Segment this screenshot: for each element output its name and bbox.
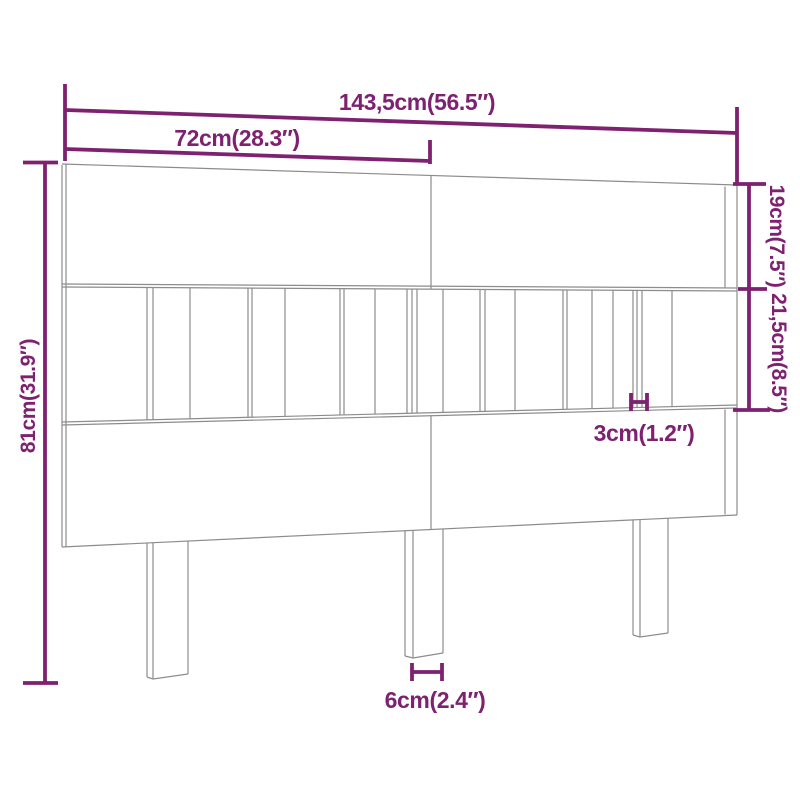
dim-leg-width-label: 6cm(2.4″) <box>385 687 486 713</box>
dim-total-width: 143,5cm(56.5″) <box>65 84 737 184</box>
dim-total-height: 81cm(31.9″) <box>17 163 58 684</box>
dim-right-brackets: 19cm(7.5″) 21,5cm(8.5″) <box>733 184 790 413</box>
diagram-page: 143,5cm(56.5″) 72cm(28.3″) 19cm(7.5″) 21… <box>0 0 800 800</box>
dimension-annotations: 143,5cm(56.5″) 72cm(28.3″) 19cm(7.5″) 21… <box>17 84 790 713</box>
center-leg-bottom-edge <box>405 653 443 658</box>
dim-leg-width: 6cm(2.4″) <box>385 663 486 713</box>
dim-middle-section-height-label: 21,5cm(8.5″) <box>767 293 790 413</box>
dim-half-width: 72cm(28.3″) <box>65 125 430 164</box>
dim-slat-thickness: 3cm(1.2″) <box>594 393 695 446</box>
bottom-rail-bottom-edge <box>62 515 737 547</box>
slat-lines <box>147 288 672 420</box>
dim-top-rail-height-label: 19cm(7.5″) <box>765 185 788 288</box>
left-leg <box>147 541 188 679</box>
dim-total-height-label: 81cm(31.9″) <box>17 339 40 453</box>
right-leg <box>633 518 668 637</box>
headboard-dimension-diagram: 143,5cm(56.5″) 72cm(28.3″) 19cm(7.5″) 21… <box>0 0 800 800</box>
top-rail-top-edge <box>62 164 737 185</box>
dim-slat-thickness-label: 3cm(1.2″) <box>594 420 695 446</box>
center-leg <box>405 529 443 658</box>
dim-half-width-label: 72cm(28.3″) <box>174 125 300 151</box>
right-leg-bottom-edge <box>633 633 668 637</box>
top-rail <box>62 164 737 291</box>
dim-total-width-label: 143,5cm(56.5″) <box>339 89 495 115</box>
